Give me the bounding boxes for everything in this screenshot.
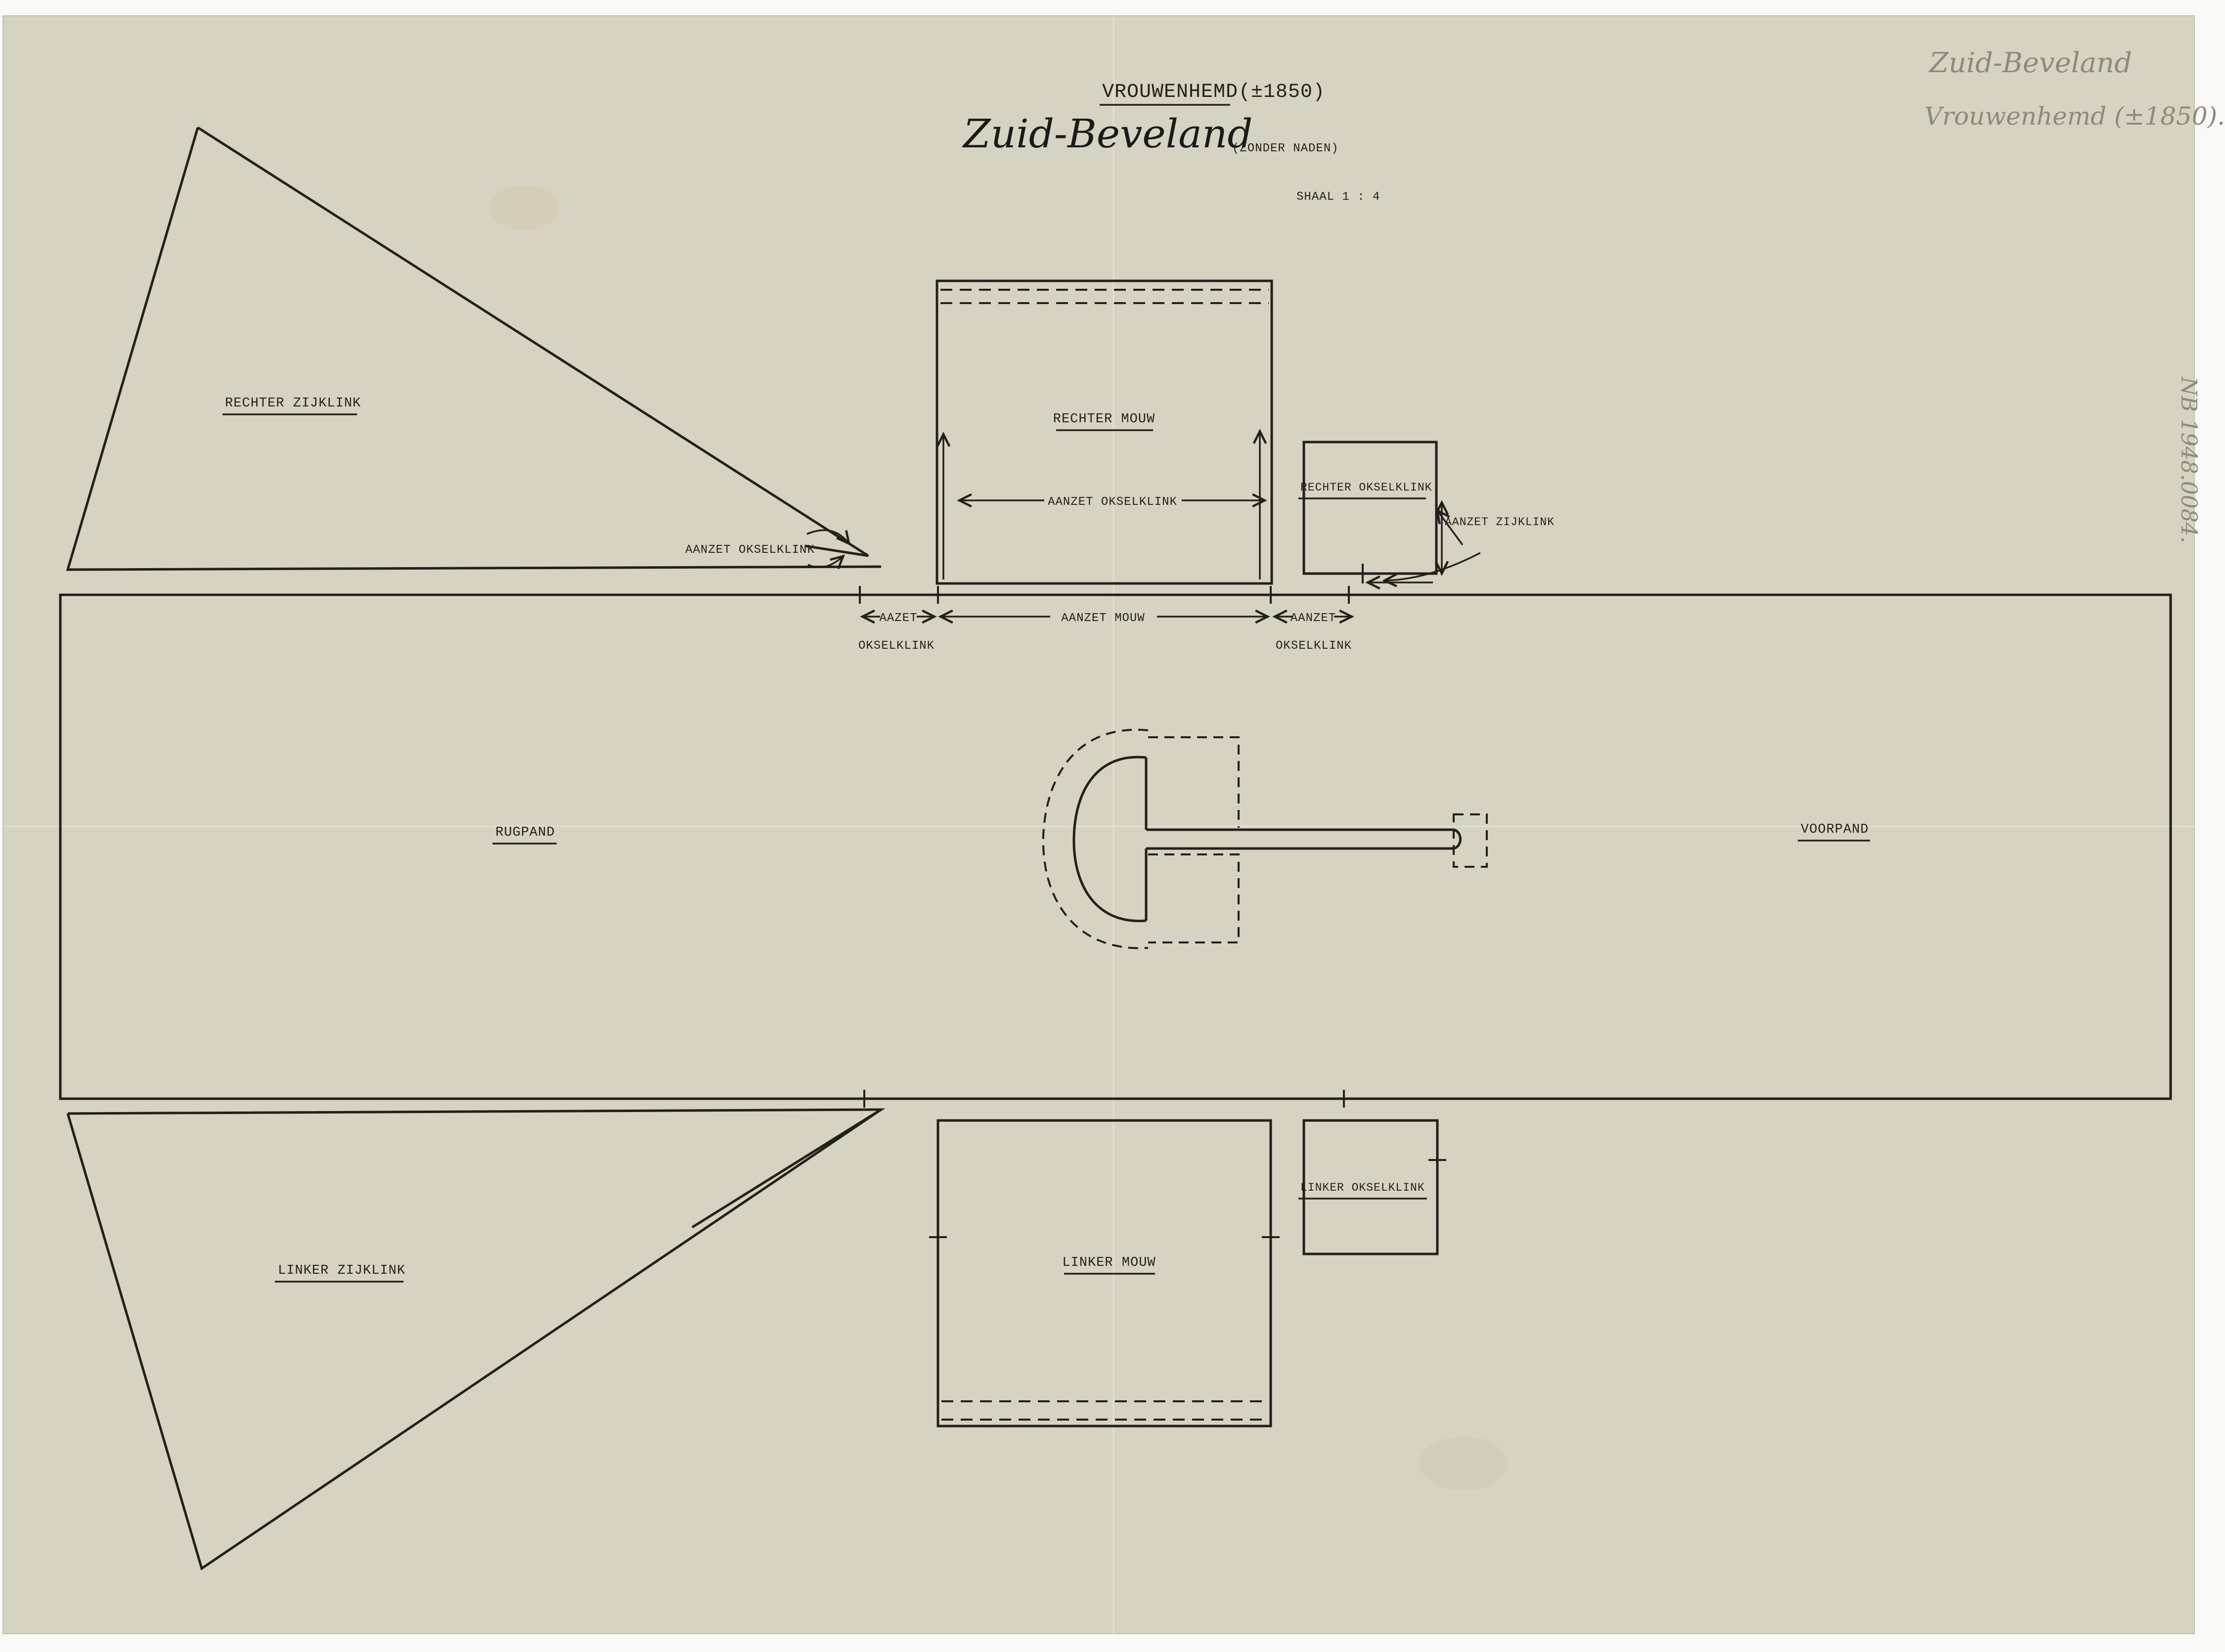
subtitle-zonder-naden: (ZONDER NADEN) (1232, 142, 1339, 155)
scale-label: SHAAL 1 : 4 (1296, 190, 1380, 204)
dim-right-label2: OKSELKLINK (1276, 639, 1352, 653)
paper-stain (1419, 1436, 1508, 1491)
armpit-side-attach-label: AANZET ZIJKLINK (1445, 516, 1555, 529)
left-side-gusset-label: LINKER ZIJKLINK (278, 1263, 405, 1278)
region-handwritten: Zuid-Beveland (962, 111, 1253, 157)
right-side-gusset-label: RECHTER ZIJKLINK (225, 396, 361, 411)
dim-left-label2: OKSELKLINK (858, 639, 934, 653)
scanned-pattern-sheet: VROUWENHEMD (±1850) Zuid-Beveland (ZONDE… (0, 0, 2225, 1652)
pencil-note-line1: Zuid-Beveland (1928, 47, 2132, 79)
dim-middle-label: AANZET MOUW (1061, 612, 1145, 625)
sleeve-dim-label: AANZET OKSELKLINK (1048, 495, 1177, 509)
right-sleeve-label: RECHTER MOUW (1053, 412, 1155, 427)
title-text: VROUWENHEMD (1102, 81, 1238, 103)
inventory-number-vertical: NB 1948.0084. (2176, 376, 2201, 543)
title-year: (±1850) (1239, 81, 1325, 103)
pencil-note-line2: Vrouwenhemd (±1850). (1924, 102, 2225, 131)
back-panel-label: RUGPAND (495, 825, 555, 840)
left-sleeve-label: LINKER MOUW (1062, 1255, 1156, 1270)
pattern-drawing: VROUWENHEMD (±1850) Zuid-Beveland (ZONDE… (0, 0, 2225, 1652)
dim-right-label: AANZET (1290, 612, 1336, 625)
left-armpit-gusset-label: LINKER OKSELKLINK (1300, 1181, 1425, 1194)
right-armpit-gusset-label: RECHTER OKSELKLINK (1300, 481, 1432, 494)
paper-stain (489, 185, 559, 230)
front-panel-label: VOORPAND (1801, 822, 1869, 837)
dim-left-label: AAZET (879, 612, 917, 625)
gusset-tip-annotation: AANZET OKSELKLINK (685, 543, 815, 557)
